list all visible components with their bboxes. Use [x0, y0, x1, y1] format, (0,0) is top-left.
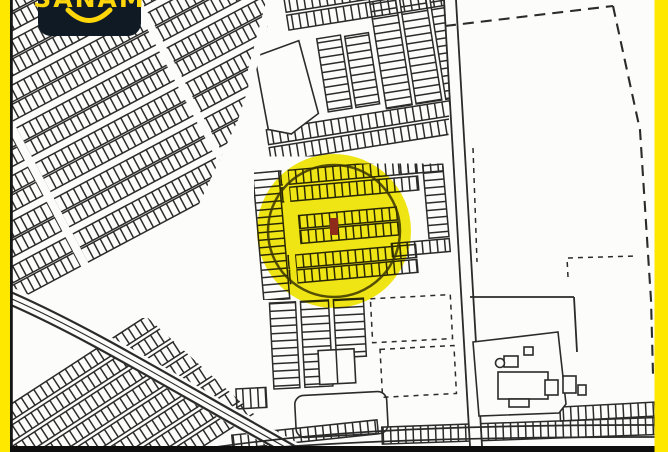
frame-left-edge-line — [10, 0, 13, 446]
frame-bottom-band — [10, 446, 655, 452]
watermark-text: SANAM — [33, 0, 146, 13]
map-image: SANAM — [0, 0, 668, 452]
watermark-logo: SANAM — [33, 0, 146, 36]
frame-right-bar — [655, 0, 668, 452]
property-marker-icon — [330, 218, 338, 235]
cadastral-map: SANAM — [0, 0, 668, 452]
frame-left-bar — [0, 0, 10, 452]
